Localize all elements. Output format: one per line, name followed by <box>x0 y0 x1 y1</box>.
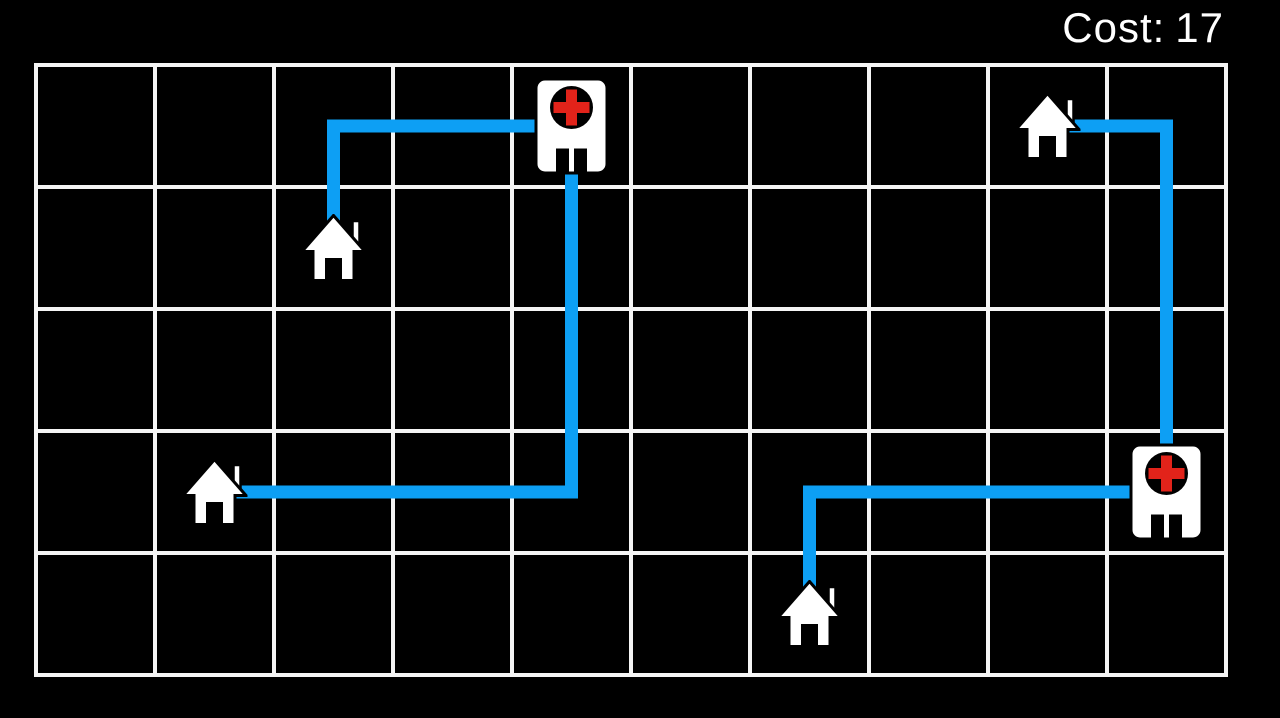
cost-display: Cost:17 <box>1062 4 1224 52</box>
house-icon-house-4[interactable] <box>778 582 841 649</box>
house-icon-house-1[interactable] <box>302 216 365 283</box>
hospital-icon-hospital-2[interactable] <box>1131 445 1202 539</box>
hospital-icon-hospital-1[interactable] <box>536 79 607 173</box>
routing-board[interactable] <box>0 0 1280 718</box>
route-layer <box>215 126 1167 614</box>
cost-label: Cost: <box>1062 4 1165 51</box>
cost-value: 17 <box>1175 4 1224 51</box>
house-icon-house-2[interactable] <box>183 460 246 527</box>
game-screen: Cost:17 <box>0 0 1280 718</box>
house-icon-house-3[interactable] <box>1016 94 1079 161</box>
